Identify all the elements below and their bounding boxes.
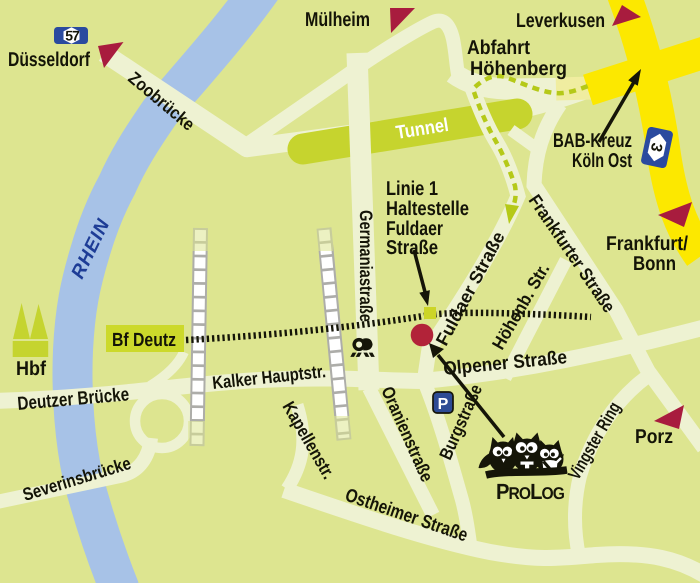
svg-text:Düsseldorf: Düsseldorf: [8, 49, 90, 71]
svg-text:BAB-Kreuz: BAB-Kreuz: [553, 130, 632, 152]
svg-text:Frankfurt/: Frankfurt/: [606, 233, 688, 255]
svg-text:Abfahrt: Abfahrt: [467, 37, 530, 59]
svg-text:Mülheim: Mülheim: [305, 9, 370, 31]
svg-text:P: P: [438, 396, 449, 413]
svg-text:Bf Deutz: Bf Deutz: [112, 330, 176, 351]
svg-text:Straße: Straße: [386, 237, 438, 259]
svg-text:Bonn: Bonn: [633, 253, 676, 275]
svg-text:Germaniastraße: Germaniastraße: [356, 210, 376, 322]
svg-text:Hbf: Hbf: [16, 358, 46, 380]
svg-text:57: 57: [65, 28, 80, 44]
svg-text:Leverkusen: Leverkusen: [516, 10, 605, 32]
svg-text:Höhenberg: Höhenberg: [470, 58, 567, 80]
svg-text:Porz: Porz: [635, 426, 673, 448]
svg-text:Köln Ost: Köln Ost: [572, 150, 632, 172]
svg-text:Linie 1: Linie 1: [386, 178, 438, 200]
svg-text:Haltestelle: Haltestelle: [386, 198, 469, 220]
